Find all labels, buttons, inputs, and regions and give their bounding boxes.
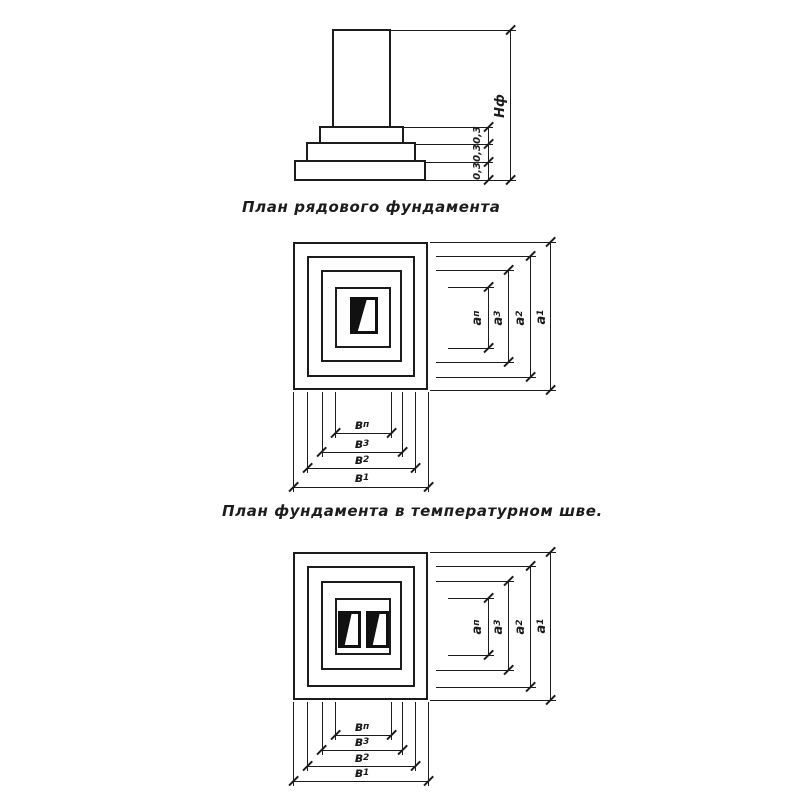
extension-line: [436, 687, 536, 688]
caption-typical-foundation-plan: План рядового фундамента: [242, 198, 492, 216]
dimension-line-a1: [550, 552, 551, 700]
extension-line: [430, 390, 556, 391]
plan1-dim-b-p: вп: [342, 418, 382, 432]
foundation-height-dim-label: Нф: [493, 93, 507, 119]
dimension-line-b3: [321, 750, 402, 751]
plan1-dim-a-2: а2: [512, 305, 528, 331]
plan1-dim-b-2: в2: [342, 453, 382, 467]
dimension-line-b1: [293, 487, 428, 488]
dimension-line-b3: [321, 452, 402, 453]
caption-joint-foundation-plan: План фундамента в температурном шве.: [222, 502, 572, 520]
extension-line: [428, 392, 429, 492]
extension-line: [425, 162, 493, 163]
plan2-dim-a-p: ап: [469, 614, 485, 640]
elevation-step-middle: [306, 142, 416, 162]
dimension-line-a1: [550, 242, 551, 390]
column-shade: [353, 300, 375, 331]
dimension-line-hf: [510, 30, 511, 180]
step-height-dim-label: 0,3: [472, 160, 484, 182]
plan1-dim-a-1: а1: [533, 304, 549, 330]
dimension-line-a3: [508, 270, 509, 362]
extension-line: [415, 392, 416, 473]
dimension-line-a3: [508, 581, 509, 670]
extension-line: [293, 702, 294, 786]
dimension-line-b2: [307, 766, 415, 767]
extension-line: [436, 270, 514, 271]
plan1-dim-b-1: в1: [342, 471, 382, 485]
dimension-line-a2: [530, 256, 531, 377]
dimension-line-b2: [307, 468, 415, 469]
dimension-line-ap: [488, 598, 489, 655]
extension-line: [436, 670, 514, 671]
dimension-line-b1: [293, 781, 428, 782]
extension-line: [293, 392, 294, 492]
plan2-dim-b-2: в2: [342, 751, 382, 765]
drawing-canvas: 0,3 0,3 0,3 Нф План рядового фундамента …: [0, 0, 800, 800]
plan1-column-section: [350, 297, 378, 334]
extension-line: [415, 702, 416, 771]
extension-line: [436, 566, 536, 567]
elevation-step-bottom: [294, 160, 426, 181]
plan1-dim-a-3: а3: [490, 305, 506, 331]
elevation-column-shaft: [332, 29, 391, 128]
extension-line: [430, 700, 556, 701]
extension-line: [425, 180, 516, 181]
plan2-column-section-right: [366, 611, 389, 648]
extension-line: [436, 581, 514, 582]
extension-line: [391, 30, 516, 31]
extension-line: [307, 392, 308, 473]
extension-line: [436, 362, 514, 363]
column-shade: [341, 614, 358, 645]
extension-line: [430, 552, 556, 553]
dimension-line-a2: [530, 566, 531, 687]
plan1-dim-b-3: в3: [342, 437, 382, 451]
plan2-dim-a-2: а2: [512, 614, 528, 640]
plan2-dim-b-p: вп: [342, 720, 382, 734]
extension-line: [428, 702, 429, 786]
plan1-dim-a-p: ап: [469, 305, 485, 331]
extension-line: [402, 392, 403, 457]
extension-line: [436, 377, 536, 378]
extension-line: [307, 702, 308, 771]
extension-line: [430, 242, 556, 243]
extension-line: [414, 144, 493, 145]
dimension-line-steps: [488, 127, 489, 180]
dimension-line-bp: [335, 433, 391, 434]
dimension-line-bp: [335, 735, 391, 736]
extension-line: [403, 127, 493, 128]
column-shade: [369, 614, 386, 645]
plan2-dim-a-3: а3: [490, 614, 506, 640]
plan2-dim-b-1: в1: [342, 766, 382, 780]
plan2-dim-b-3: в3: [342, 735, 382, 749]
plan2-dim-a-1: а1: [533, 613, 549, 639]
extension-line: [436, 256, 536, 257]
plan2-column-section-left: [338, 611, 361, 648]
dimension-line-ap: [488, 287, 489, 348]
